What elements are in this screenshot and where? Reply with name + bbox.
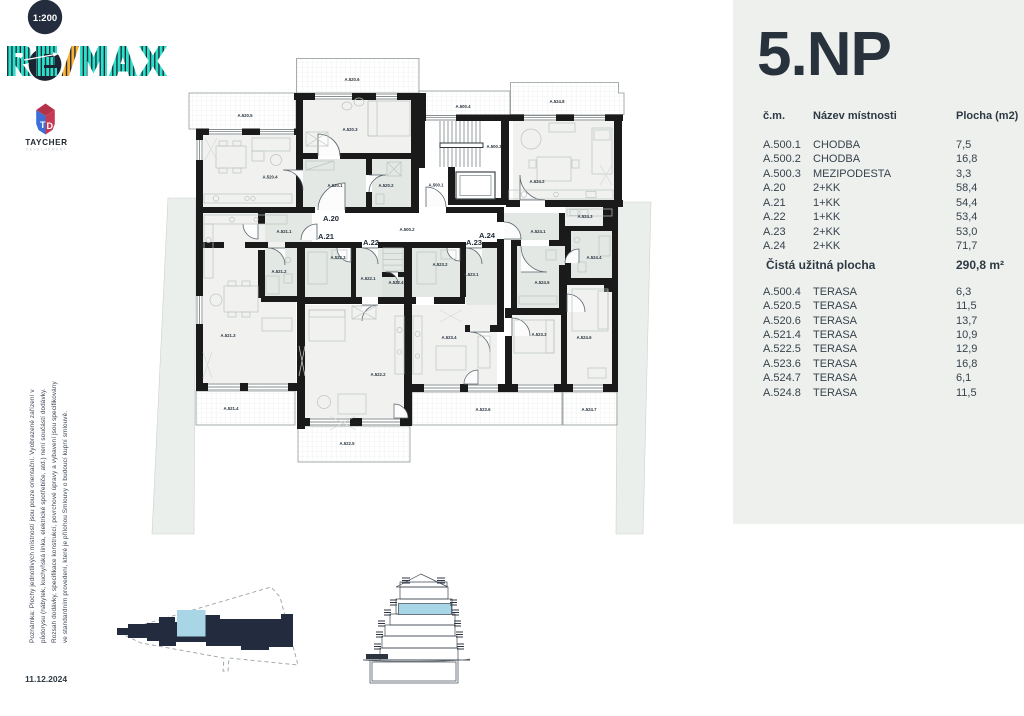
svg-text:A.522.4: A.522.4 <box>388 280 404 285</box>
svg-text:D: D <box>47 121 54 131</box>
svg-text:A.500.4: A.500.4 <box>455 104 471 109</box>
svg-text:A.524.3: A.524.3 <box>577 214 593 219</box>
svg-text:A.523.4: A.523.4 <box>441 335 457 340</box>
svg-text:A.520.5: A.520.5 <box>237 113 253 118</box>
svg-text:A.522.3: A.522.3 <box>330 255 346 260</box>
svg-text:A.22: A.22 <box>363 238 379 247</box>
svg-text:A.520.4: A.520.4 <box>262 174 278 179</box>
svg-text:A.521.2: A.521.2 <box>271 269 287 274</box>
svg-text:A.522.1: A.522.1 <box>360 276 376 281</box>
svg-text:TAYCHER: TAYCHER <box>25 138 67 147</box>
svg-text:A.523.3: A.523.3 <box>531 332 547 337</box>
svg-text:A.21: A.21 <box>318 232 335 241</box>
svg-text:A.520.3: A.520.3 <box>342 127 358 132</box>
svg-text:A.521.3: A.521.3 <box>220 333 236 338</box>
svg-text:A.520.1: A.520.1 <box>327 183 343 188</box>
svg-text:A.20: A.20 <box>323 214 339 223</box>
svg-text:A.524.2: A.524.2 <box>529 179 545 184</box>
svg-text:T: T <box>40 120 46 130</box>
svg-text:A.524.4: A.524.4 <box>586 255 602 260</box>
svg-text:A.524.6: A.524.6 <box>576 335 592 340</box>
svg-text:A.521.4: A.521.4 <box>223 406 239 411</box>
svg-text:N: N <box>18 55 22 61</box>
svg-text:A.524.8: A.524.8 <box>549 99 565 104</box>
svg-text:A.523.2: A.523.2 <box>432 262 448 267</box>
svg-text:A.500.1: A.500.1 <box>428 183 444 188</box>
svg-text:1:200: 1:200 <box>33 13 57 24</box>
svg-text:A.520.6: A.520.6 <box>344 77 360 82</box>
svg-text:A.522.2: A.522.2 <box>370 372 386 377</box>
svg-text:A.522.5: A.522.5 <box>339 441 355 446</box>
svg-text:A.524.1: A.524.1 <box>530 229 546 234</box>
svg-text:A.524.7: A.524.7 <box>581 407 597 412</box>
svg-text:A.24: A.24 <box>479 231 496 240</box>
svg-text:A.500.2: A.500.2 <box>399 227 415 232</box>
svg-text:A.523.1: A.523.1 <box>463 272 479 277</box>
svg-text:A.520.2: A.520.2 <box>378 183 394 188</box>
svg-text:A.523.6: A.523.6 <box>475 407 491 412</box>
svg-text:A.521.1: A.521.1 <box>276 229 292 234</box>
svg-text:A.500.3: A.500.3 <box>486 144 502 149</box>
svg-text:DEVELOPMENT: DEVELOPMENT <box>26 148 67 152</box>
svg-text:A.524.5: A.524.5 <box>534 280 550 285</box>
